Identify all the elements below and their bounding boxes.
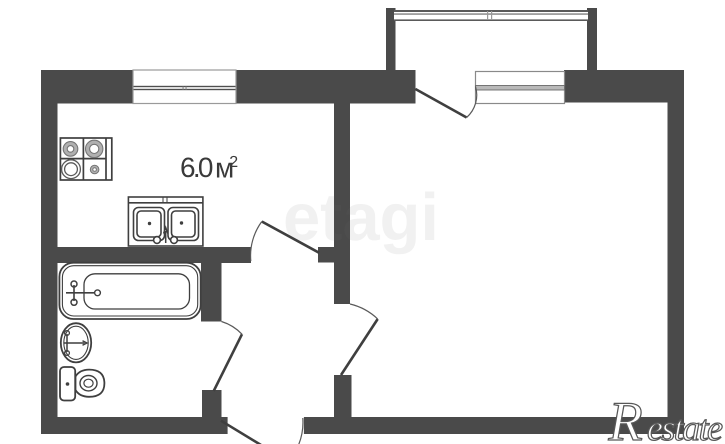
svg-text:estate: estate — [647, 408, 723, 444]
svg-text:R: R — [608, 391, 643, 444]
svg-text:2: 2 — [229, 154, 238, 171]
svg-text:6.0: 6.0 — [180, 152, 214, 183]
svg-text:etagi: etagi — [283, 180, 439, 255]
